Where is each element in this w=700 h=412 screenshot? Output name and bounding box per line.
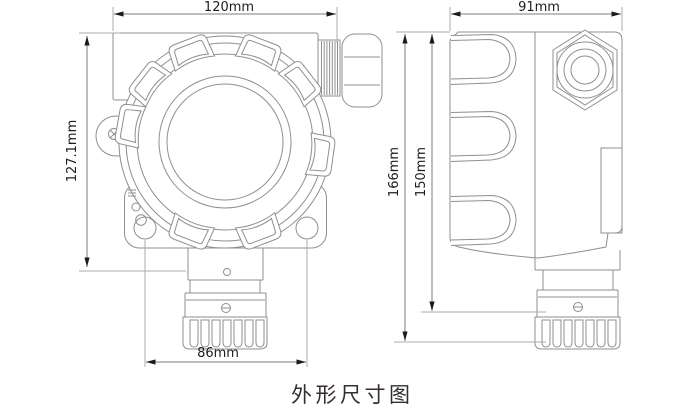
side-ring-outline	[537, 290, 618, 317]
dim-side-width: 91mm	[450, 0, 622, 31]
dimension-drawing-page: 120mm 127.1mm 86mm 91mm 166mm 150mm	[0, 0, 700, 412]
front-view	[96, 33, 382, 349]
side-cap-outline	[535, 317, 620, 349]
front-conduit-thread	[318, 40, 340, 96]
dim-label-front-height: 127.1mm	[65, 120, 80, 183]
side-sensor-ring	[537, 290, 618, 317]
side-lug	[451, 196, 516, 246]
side-lug	[451, 112, 516, 162]
dim-label-side-width: 91mm	[518, 0, 560, 15]
dim-label-front-width: 120mm	[204, 0, 254, 15]
front-sensor-ring	[185, 293, 266, 317]
neck-screw	[224, 269, 231, 276]
cap-outline	[183, 317, 267, 349]
outline-dimension-drawing: 120mm 127.1mm 86mm 91mm 166mm 150mm	[0, 0, 700, 412]
thread-lines	[322, 41, 338, 95]
side-view	[450, 30, 622, 349]
side-cap-ribs	[542, 320, 616, 347]
side-sensor-assembly	[535, 250, 620, 349]
side-lug	[451, 35, 516, 85]
front-sensor-cap	[183, 317, 267, 349]
dim-label-hole-spacing: 86mm	[197, 346, 239, 361]
drawing-caption: 外形尺寸图	[291, 383, 414, 407]
gland-plug-body	[342, 34, 382, 107]
front-gland-plug	[342, 34, 382, 107]
cap-ribs	[190, 320, 264, 347]
dim-label-body-height: 150mm	[414, 147, 429, 197]
front-sensor-assembly	[183, 269, 267, 350]
side-grip-lugs	[451, 35, 516, 246]
sensor-step	[190, 280, 260, 293]
side-sensor-cap	[535, 317, 620, 349]
dim-label-overall-height: 166mm	[387, 147, 402, 197]
ring-outline	[185, 293, 266, 317]
